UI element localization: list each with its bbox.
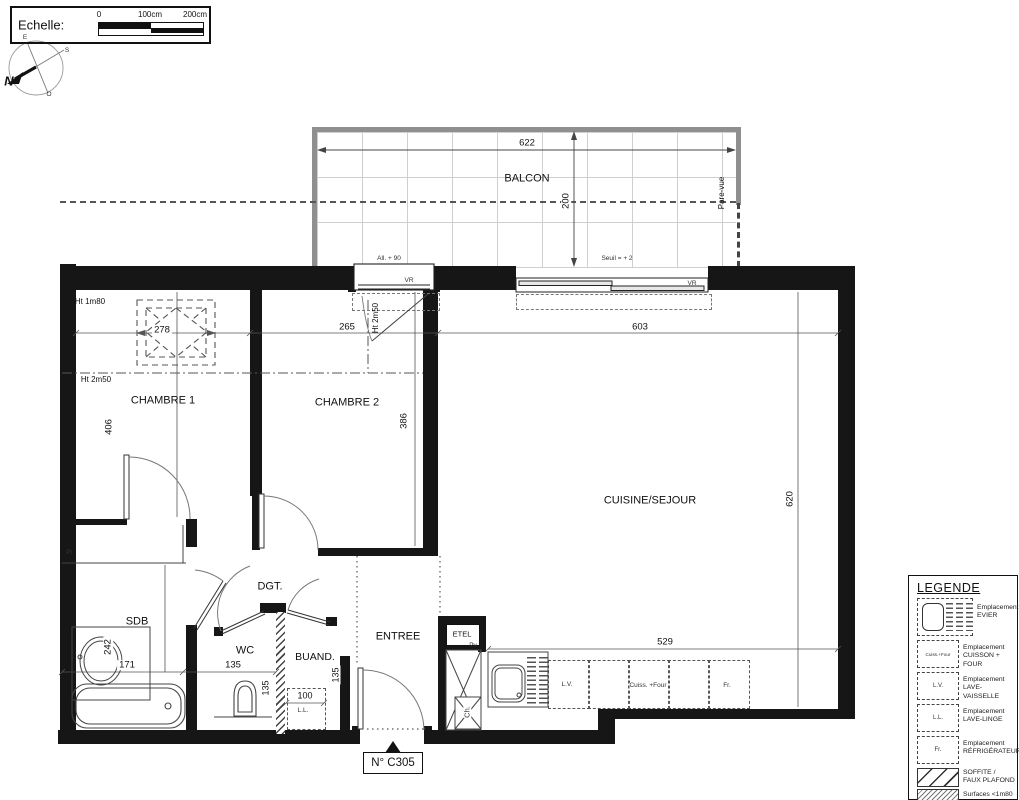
label-allege: All. + 90 [377, 256, 401, 263]
wall-chambre1-chambre2-lower [252, 496, 260, 550]
dim-buanderie-depth: 135 [332, 665, 341, 684]
unit-number: N° C305 [371, 757, 415, 769]
open-boundaries [357, 556, 440, 729]
legend-soffite-label: SOFFITE /FAUX PLAFOND [963, 769, 1015, 786]
door-entrance [358, 668, 424, 730]
label-ht1m80: Ht 1m80 [75, 298, 105, 306]
legend-frigo-label: EmplacementRÉFRIGÉRATEUR [963, 740, 1019, 757]
etel-wall-left [438, 616, 446, 740]
label-vr-window1: VR [404, 278, 413, 285]
wall-bottom-kitchen [613, 709, 840, 719]
scale-tick-200: 200cm [183, 11, 207, 19]
dim-cuisine-depth: 620 [785, 489, 795, 509]
placard-lines [62, 525, 186, 563]
dim-balcony-depth: 200 [561, 191, 571, 211]
buanderie-door-post [326, 617, 337, 626]
legend-evier-label: EmplacementEVIER [977, 604, 1019, 621]
wall-sdb-wc [186, 625, 197, 735]
label-chambre2: CHAMBRE 2 [315, 398, 379, 409]
roof-overhang-line [60, 201, 736, 203]
dim-wc-depth: 135 [262, 678, 271, 697]
appliance-slot-2 [588, 660, 630, 709]
label-placard: Pl [66, 550, 72, 557]
pare-vue-screen [737, 203, 740, 267]
bay-jamb-right [706, 278, 715, 290]
label-seuil: Seuil = + 2 [601, 256, 632, 263]
dim-kitchen-counter: 529 [655, 637, 675, 647]
compass-north: N [4, 75, 13, 88]
label-dgt: DGT. [257, 582, 282, 593]
dim-cuisine-width: 603 [630, 322, 650, 332]
door-buanderie [287, 579, 330, 625]
scale-tick-100: 100cm [138, 11, 162, 19]
wall-top-b [434, 266, 516, 290]
label-cuisson-slot: Cuiss. +Four [629, 683, 666, 690]
sink-drainer-hatch-1 [527, 657, 536, 706]
legend-surfaces-label: Surfaces <1m80 [963, 791, 1013, 799]
legend-surfaces-icon [917, 789, 959, 800]
legend-title: LEGENDE [917, 581, 980, 595]
label-chambre1: CHAMBRE 1 [131, 396, 195, 407]
legend-evier-icon [917, 598, 973, 636]
soffit-window1 [352, 293, 440, 311]
scale-rule [98, 22, 204, 36]
compass-west: O [46, 92, 51, 99]
label-cuisine-sejour: CUISINE/SEJOUR [604, 496, 696, 507]
compass-rose-icon [7, 41, 64, 95]
dim-lave-linge-width: 100 [295, 692, 314, 701]
label-entree: ENTREE [376, 632, 421, 643]
compass-south: S [65, 48, 69, 55]
wc-door-post [214, 627, 223, 636]
sink-drainer-hatch-2 [539, 657, 548, 706]
legend-lv-icon: L.V. [917, 672, 959, 700]
wall-bottom-a [58, 730, 360, 744]
wall-top-a [60, 266, 356, 290]
wall-chambre2-bottom [318, 548, 438, 556]
bathtub-icon [72, 684, 185, 728]
label-frigo-slot: Fr. [723, 683, 731, 690]
soffit-bay [516, 294, 712, 310]
legend-ll-icon: L.L. [917, 704, 959, 732]
dim-chambre1-depth: 406 [104, 417, 114, 437]
entry-jamb-left [352, 726, 360, 744]
label-pv: Pv [469, 643, 477, 650]
legend-frigo-icon: Fr. [917, 736, 959, 764]
legend-ll-label: EmplacementLAVE-LINGE [963, 708, 1005, 725]
wall-chambre2-cuisine [423, 290, 438, 556]
appliance-slot-4 [668, 660, 710, 709]
window1-jamb-right [432, 282, 440, 292]
dim-balcony-width: 622 [517, 138, 537, 148]
label-pare-vue: Pare-vue [718, 177, 726, 209]
compass-east: E [23, 35, 27, 42]
scale-label: Echelle: [18, 19, 64, 32]
scale-bar: Echelle: 0 100cm 200cm [10, 6, 211, 44]
balcony-edge-top [312, 127, 741, 132]
dim-sdb-depth: 242 [103, 637, 113, 657]
label-vr-bay: VR [687, 281, 696, 288]
wall-top-c [708, 266, 855, 290]
dim-chambre1-width: 278 [152, 325, 172, 335]
label-buanderie: BUAND. [295, 652, 335, 663]
wall-chambre1-bottom [60, 519, 127, 525]
label-lave-vaisselle-slot: L.V. [562, 682, 573, 689]
door-wc [218, 566, 265, 634]
unit-number-box: N° C305 [363, 752, 423, 774]
legend-panel: LEGENDE EmplacementEVIER Cuiss.+Four Emp… [908, 575, 1018, 800]
legend-soffite-icon [917, 768, 959, 787]
dim-chambre2-depth: 386 [399, 411, 409, 431]
window1-jamb-left [348, 282, 356, 292]
floor-plan-c305: Echelle: 0 100cm 200cm [0, 0, 1019, 800]
wall-buanderie-entree [340, 656, 350, 735]
label-balcon: BALCON [504, 174, 549, 185]
balcony-tile-grid [317, 132, 736, 268]
scale-tick-0: 0 [97, 11, 101, 19]
dim-wc-width: 135 [223, 660, 243, 670]
label-etel: ETEL [453, 630, 472, 638]
label-wc: WC [236, 646, 254, 657]
balcony-edge-right [736, 127, 741, 205]
window-bay-sliding [516, 278, 708, 292]
label-lave-linge: L.L. [298, 708, 309, 715]
balcony-edge-left [312, 127, 317, 268]
bay-jamb-left [508, 278, 517, 290]
label-ht2m50: Ht 2m50 [81, 376, 111, 384]
door-chambre2 [259, 494, 318, 550]
wall-right [838, 266, 855, 719]
door-sdb [194, 570, 226, 630]
dim-top [73, 330, 841, 336]
skylight-icon [137, 300, 215, 365]
wall-wc-buanderie-low [276, 612, 285, 734]
wall-sdb-top [186, 519, 197, 547]
legend-cuisson-label: EmplacementCUISSON + FOUR [963, 644, 1017, 669]
door-chambre1 [124, 455, 190, 519]
label-ht2m50-window: Ht 2m50 [372, 303, 380, 333]
entry-jamb-right [424, 726, 432, 744]
wall-bottom-b [428, 730, 600, 744]
legend-cuisson-icon: Cuiss.+Four [917, 640, 959, 668]
label-sdb: SDB [126, 617, 149, 628]
label-chauffe-eau: Ch. [463, 706, 471, 718]
wall-chambre1-chambre2 [250, 290, 262, 496]
dim-chambre2-width: 265 [337, 322, 357, 332]
technical-closet [446, 650, 481, 730]
dim-sdb-width: 171 [117, 660, 137, 670]
wall-left [60, 264, 76, 744]
legend-lv-label: EmplacementLAVE-VAISSELLE [963, 676, 1017, 701]
